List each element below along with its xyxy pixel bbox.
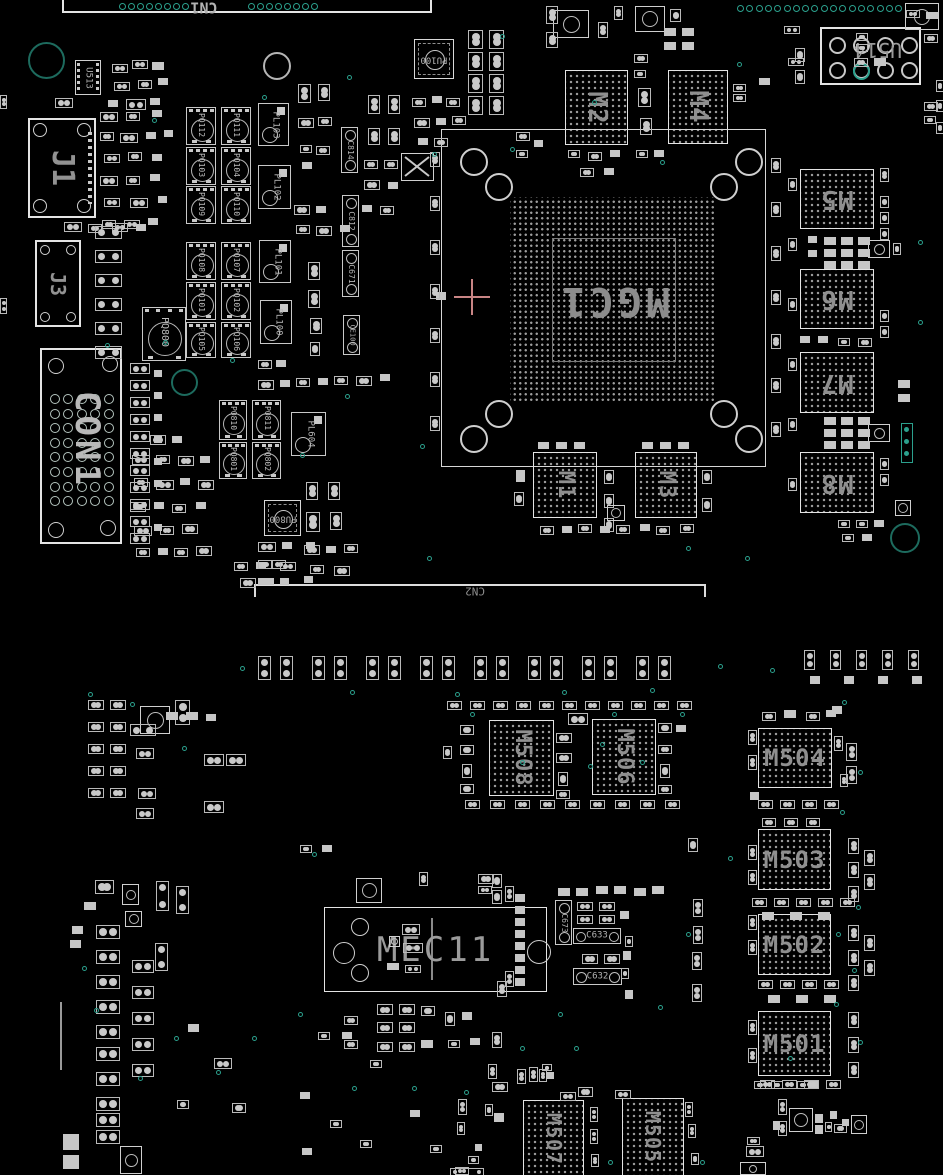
component-m501[interactable]: M501 [758,1011,831,1076]
smd-2pad [430,328,440,343]
pin-pad [98,301,105,308]
pin-pad [192,353,197,356]
smd-ic [607,505,625,521]
component-pq111[interactable]: PQ111 [221,107,251,145]
pin-pad [472,60,480,68]
component-label: PQ106 [232,327,240,351]
via-dot [680,712,685,717]
smd-2pad [515,800,530,809]
component-pq800[interactable]: PQ800 [142,307,186,361]
smd-pad [154,502,162,509]
mount-ring [749,1165,757,1173]
pin-pad [687,1105,691,1109]
smd-ic [389,936,400,947]
smd-2pad [780,800,795,809]
pin-pad [98,349,105,356]
smd-2pad [842,534,854,542]
component-pq801[interactable]: PQ801 [219,442,247,479]
smd-pad [418,138,428,145]
smd-pad [322,845,332,852]
mount-ring [794,1113,808,1127]
smd-2pad [384,160,398,169]
smd-2pad [96,1113,120,1127]
smd-2pad [838,520,850,528]
smd-2pad [578,1087,593,1097]
pin-pad [141,383,147,389]
smd-pad [158,548,168,555]
component-m7[interactable]: M7 [800,352,874,413]
component-c814[interactable]: C814 [341,127,358,173]
smd-2pad [412,98,426,107]
smd-2pad [95,298,122,311]
pin-pad [849,775,855,781]
mount-ring [867,5,874,12]
pin-pad [231,149,235,152]
smd-2pad [130,533,150,544]
smd-pad [316,206,326,213]
mount-ring [33,123,47,137]
smd-2pad [136,808,154,819]
pin-pad [739,86,743,90]
pin-pad [189,109,193,112]
component-pq109[interactable]: PQ109 [186,186,216,224]
smd-2pad [232,1103,246,1113]
smd-2pad [582,656,595,680]
smd-2pad [96,1025,120,1039]
smd-2pad [546,32,558,48]
pin-pad [144,1041,151,1048]
pin-pad [493,60,501,68]
pin-pad [301,93,308,100]
pin-pad [787,802,792,807]
pin-pad [739,96,743,100]
smd-ic [895,500,911,516]
smd-2pad [198,480,214,490]
smd-2pad [788,298,797,311]
smd-pad [432,96,442,103]
via-dot [262,95,267,100]
pin-pad [206,353,211,356]
smd-2pad [196,546,212,556]
pin-pad [135,1015,142,1022]
pin-pad [245,244,249,247]
component-c632[interactable]: C632 [573,968,622,985]
pin-pad [301,207,307,213]
component-j3[interactable]: J3 [35,240,81,327]
smd-2pad [864,960,875,976]
smd-2pad [88,788,104,798]
smd-2pad [565,800,580,809]
pin-pad [141,434,147,440]
component-c633[interactable]: C633 [573,928,621,944]
component-label: PL100 [273,308,282,335]
pin-pad [112,200,117,205]
component-pl103[interactable]: PL103 [258,103,289,146]
smd-2pad [748,1020,757,1035]
mount-ring [50,482,60,492]
smd-2pad [854,58,868,67]
smd-2pad [258,360,272,369]
pin-pad [831,982,836,987]
component-pq810[interactable]: PQ810 [219,400,247,440]
component-pq106[interactable]: PQ106 [221,322,251,358]
smd-2pad [880,326,889,338]
smd-2pad [488,1064,497,1079]
component-pl101[interactable]: PL101 [259,240,291,283]
pcb-boardview: CN1CN2U513J1J3CON1PU100PQ112PQ111PQ103PQ… [0,0,943,1175]
pin-pad [585,917,590,922]
smd-pad [784,710,796,718]
pin-pad [133,383,139,389]
component-m5[interactable]: M5 [800,169,874,229]
smd-pad [515,966,525,974]
pin-pad [768,820,773,825]
component-pq108[interactable]: PQ108 [186,242,216,280]
via-dot [608,1160,613,1165]
via-dot [464,1090,469,1095]
smd-pad [556,442,567,449]
pin-pad [98,277,105,284]
pin-pad [589,956,595,962]
pin-pad [321,91,328,98]
mount-ring [333,942,355,964]
pin-pad [663,725,669,731]
component-m503[interactable]: M503 [758,829,831,890]
smd-2pad [368,128,380,145]
smd-2pad [126,176,140,185]
pin-pad [144,989,151,996]
mount-ring [829,62,846,79]
pin-pad [179,703,187,711]
pin-pad [790,243,795,248]
component-pq101[interactable]: PQ101 [186,282,216,320]
component-m3[interactable]: M3 [635,452,697,518]
component-pl604[interactable]: PL604 [291,412,326,456]
pin-pad [445,659,452,666]
pin-pad [647,802,652,807]
via-dot [300,453,305,458]
component-pq105[interactable]: PQ105 [186,322,216,358]
pin-pad [453,1042,457,1046]
smd-pad [600,526,610,533]
pin-pad [423,659,430,666]
mount-ring [346,253,357,264]
component-m508[interactable]: M508 [489,720,554,796]
smd-2pad [880,474,889,486]
mount-ring [737,5,744,12]
smd-2pad [670,9,681,22]
smd-2pad [388,128,400,145]
component-label: M1 [554,471,576,500]
mount-ring [362,883,377,898]
pin-pad [247,580,253,586]
smd-2pad [366,656,379,680]
component-label: M502 [764,933,826,957]
pin-pad [313,324,320,331]
smd-2pad [578,524,592,533]
pin-pad [440,140,445,145]
smd-pad [206,714,216,721]
via-dot [558,1012,563,1017]
pin-pad [228,402,232,405]
component-con1[interactable]: CON1 [40,348,122,544]
component-pq112[interactable]: PQ112 [186,107,216,145]
pin-pad [241,219,246,222]
via-dot [834,1002,839,1007]
pin-pad [432,422,438,428]
component-mgc1[interactable]: MGC1 [441,129,766,467]
smd-pad [874,520,884,527]
component-pq110[interactable]: PQ110 [221,186,251,224]
smd-2pad [474,656,487,680]
pin-pad [938,127,942,131]
smd-pad [862,534,872,541]
pin-pad [586,170,591,175]
pin-pad [189,324,193,327]
pin-pad [236,757,243,764]
via-dot [728,856,733,861]
smd-2pad [450,1168,484,1175]
smd-pad [841,237,853,245]
smd-2pad [468,96,483,115]
mount-ring [874,428,885,439]
smd-2pad [132,986,154,999]
smd-2pad [130,499,150,510]
pin-pad [753,1139,757,1143]
pin-pad [141,519,147,525]
smd-2pad [691,1153,699,1165]
mount-ring [858,5,865,12]
smd-2pad [692,952,702,970]
component-c671[interactable]: C671 [342,250,359,297]
pin-pad [350,1042,355,1047]
pin-pad [750,852,755,857]
component-c673[interactable]: C673 [555,900,572,945]
pin-pad [803,900,808,905]
smd-2pad [590,1129,598,1144]
mount-ring [485,400,513,428]
pin-pad [203,244,207,247]
smd-2pad [748,870,757,885]
mount-ring [710,400,738,428]
smd-2pad [599,915,615,924]
pin-pad [384,1007,390,1013]
via-dot [94,1008,99,1013]
component-u513[interactable]: U513 [75,60,101,95]
component-pu100[interactable]: PU100 [414,39,454,79]
mount-ring [293,3,300,10]
pin-pad [519,1076,524,1081]
smd-2pad [906,10,920,18]
component-ce100[interactable]: CE100 [343,315,360,355]
pin-pad [210,324,214,327]
pin-pad [465,727,471,733]
mount-ring [527,940,551,964]
smd-2pad [334,656,347,680]
via-dot [686,546,691,551]
mount-ring [345,130,356,141]
component-pq104[interactable]: PQ104 [221,147,251,185]
pin-pad [521,152,525,156]
component-m507[interactable]: M507 [523,1100,584,1175]
smd-pad [258,578,267,585]
component-m506[interactable]: M506 [592,719,656,795]
pin-pad [335,1122,339,1126]
pin-pad [607,917,612,922]
pin-pad [196,284,200,287]
component-pq103[interactable]: PQ103 [186,147,216,185]
smd-2pad [806,818,820,827]
pin-pad [545,1066,549,1070]
pin-pad [459,1128,463,1132]
mount-ring [50,423,60,433]
component-label: M507 [544,1113,564,1165]
pin-pad [109,1050,117,1058]
pin-pad [882,216,887,221]
component-pl102[interactable]: PL102 [258,165,291,209]
smd-pad [654,150,664,157]
smd-pad [515,954,525,962]
smd-pad [818,912,830,920]
pin-pad [196,188,200,191]
smd-2pad [788,178,797,191]
component-u514[interactable]: U514 [820,27,921,85]
component-m1[interactable]: M1 [533,452,597,518]
pin-pad [210,188,214,191]
pin-pad [133,400,139,406]
smd-2pad [447,701,462,710]
pin-pad [882,462,887,467]
smd-2pad [546,6,558,24]
pin-pad [271,435,276,438]
component-m8[interactable]: M8 [800,452,874,513]
smd-2pad [758,980,773,989]
component-m502[interactable]: M502 [758,914,831,975]
pin-pad [241,140,246,143]
pin-pad [773,340,779,346]
pin-pad [238,149,242,152]
pin-pad [240,564,245,569]
pin-pad [144,963,151,970]
smd-pad [436,118,446,125]
component-m6[interactable]: M6 [800,269,874,329]
component-j1[interactable]: J1 [28,118,96,218]
smd-2pad [782,1080,797,1089]
pin-pad [241,353,246,356]
pin-pad [224,188,228,191]
smd-pad [898,380,910,388]
smd-pad [276,360,286,367]
pin-pad [664,787,669,792]
smd-2pad [748,730,757,745]
component-pq811[interactable]: PQ811 [252,400,281,440]
component-pq102[interactable]: PQ102 [221,282,251,320]
via-dot [252,1036,257,1041]
pin-pad [386,208,391,213]
pin-pad [181,1102,186,1107]
smd-2pad [864,874,875,890]
component-pu800[interactable]: PU800 [264,500,301,536]
pin-pad [180,550,185,555]
pin-pad [99,1003,107,1011]
smd-pad [158,196,167,203]
smd-pad [826,710,836,717]
smd-pad [154,436,162,443]
pin-pad [563,735,569,741]
smd-2pad [558,772,568,786]
pin-pad [593,1160,597,1164]
smd-2pad [130,516,150,527]
pin-pad [196,149,200,152]
pin-pad [371,182,377,188]
smd-pad [172,436,182,443]
smd-2pad [176,886,189,914]
smd-2pad [330,1120,342,1128]
pin-pad [643,125,650,132]
pin-pad [465,786,471,792]
pin-pad [607,670,614,677]
pin-pad [241,180,246,183]
smd-pad [634,888,646,896]
pin-pad [2,301,6,305]
component-pq107[interactable]: PQ107 [221,242,251,280]
smd-pad [810,676,820,684]
pin-pad [418,100,423,105]
smd-pad [63,1134,79,1150]
pin-pad [594,154,599,159]
component-m505[interactable]: M505 [622,1098,684,1175]
pin-pad [133,366,139,372]
pin-pad [227,219,232,222]
pin-pad [859,661,865,667]
pin-pad [578,716,585,723]
mount-ring [302,3,309,10]
smd-2pad [421,1006,435,1016]
smd-2pad [204,754,224,766]
component-label: M3 [655,471,677,500]
pin-pad [790,303,795,308]
component-c812[interactable]: C812 [342,195,359,247]
pin-pad [790,423,795,428]
smd-2pad [693,926,703,944]
smd-2pad [356,376,372,386]
component-pl100[interactable]: PL100 [260,300,292,344]
mount-ring [576,932,586,942]
pin-pad [391,670,398,677]
via-dot [240,666,245,671]
pin-pad [133,536,139,542]
pin-pad [938,85,942,89]
via-dot [852,968,857,973]
smd-2pad [370,1060,382,1068]
smd-2pad [308,290,320,308]
via-dot [592,100,597,105]
component-pq802[interactable]: PQ802 [252,442,281,479]
component-m504[interactable]: M504 [758,728,832,788]
smd-2pad [96,1097,120,1111]
pin-pad [2,307,6,311]
smd-pad [516,470,525,482]
component-label: PL604 [306,420,315,447]
connector-cn1[interactable]: CN1 [62,0,432,13]
smd-2pad [160,526,174,535]
pin-pad [109,928,117,936]
pin-pad [109,1028,117,1036]
smd-2pad [430,196,440,211]
pin-pad [98,325,105,332]
pin-pad [662,528,667,533]
pin-pad [262,402,266,405]
